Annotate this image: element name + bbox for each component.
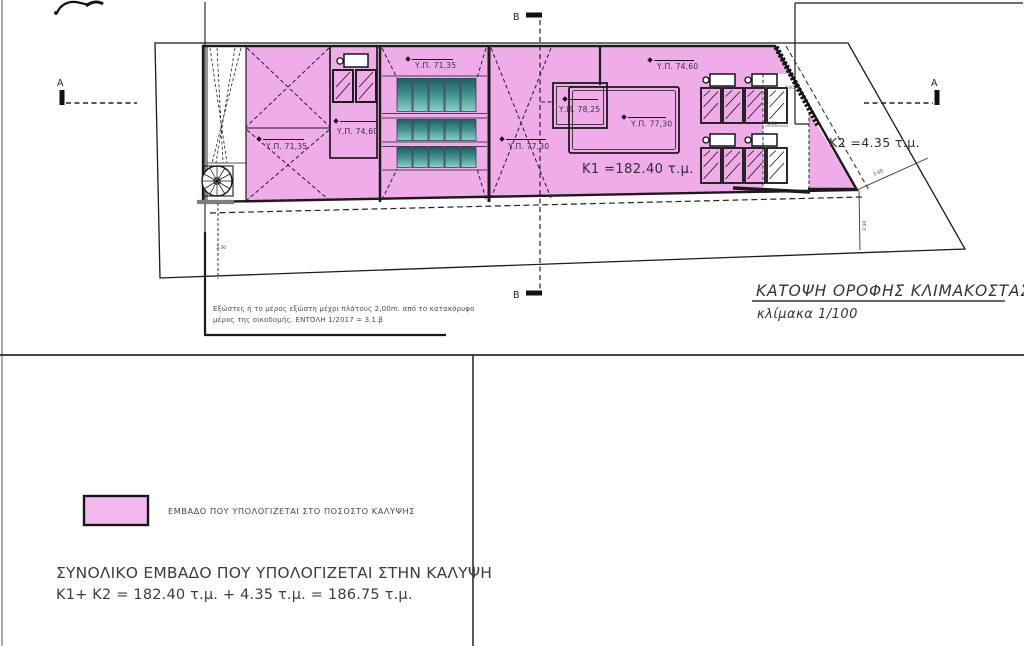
dimension-right-diag: 3.00: [872, 168, 884, 178]
height-label-5-text: Υ.Π. 77,30: [630, 120, 672, 129]
summary-line-2: K1+ K2 = 182.40 τ.μ. + 4.35 τ.μ. = 186.7…: [56, 587, 413, 603]
k2-area-label: K2 =4.35 τ.μ.: [829, 135, 920, 150]
title-block: ΚΑΤΟΨΗ ΟΡΟΦΗΣ ΚΛΙΜΑΚΟΣΤΑΣΙΟΥ κλίμακα 1/1…: [752, 282, 1024, 322]
section-label-b-top: B: [513, 12, 520, 23]
height-label-4-text: Υ.Π. 78,25: [558, 105, 600, 114]
height-label-2-text: Υ.Π. 71,35: [414, 61, 456, 70]
dimension-panel-top: 2.00: [785, 85, 794, 90]
k1-area-label: K1 =182.40 τ.μ.: [582, 162, 694, 177]
signature-mark: [54, 2, 103, 15]
slanted-wall-hatch-band: [776, 47, 818, 125]
note-line-2: μέρος της οικοδομής. ΕΝΤΟΛΗ 1/2017 = 3.1…: [213, 316, 383, 324]
height-label-6-text: Υ.Π. 74,60: [656, 62, 698, 71]
adjacent-structure-lines: [795, 3, 1023, 124]
note-line-1: Εξώστες ή το μέρος εξώστη μέχρι πλάτους …: [213, 305, 475, 313]
dimension-left-offset: 3.30: [216, 245, 226, 251]
section-marker-b-bottom: B: [513, 290, 542, 301]
skylight-grid: [382, 76, 487, 170]
dimension-lines: [857, 158, 928, 250]
legend-swatch: [84, 496, 148, 525]
section-marker-a-left: A: [57, 78, 137, 105]
dimension-right-offset: 3.30: [862, 221, 868, 231]
drawing-scale: κλίμακα 1/100: [757, 307, 858, 322]
drawing-title: ΚΑΤΟΨΗ ΟΡΟΦΗΣ ΚΛΙΜΑΚΟΣΤΑΣΙΟΥ: [756, 282, 1024, 300]
height-label-3-text: Υ.Π. 77,30: [507, 142, 549, 151]
section-label-a-left: A: [57, 78, 64, 89]
floor-plan-sheet: A A B B Υ.Π. 71,35 Υ.Π. 74,60 Υ.Π. 71,35…: [0, 0, 1024, 646]
legend-label: ΕΜΒΑΔΟ ΠΟΥ ΥΠΟΛΟΓΙΖΕΤΑΙ ΣΤΟ ΠΟΣΟΣΤΟ ΚΑΛΥ…: [168, 506, 415, 516]
summary-line-1: ΣΥΝΟΛΙΚΟ ΕΜΒΑΔΟ ΠΟΥ ΥΠΟΛΟΓΙΖΕΤΑΙ ΣΤΗΝ ΚΑ…: [56, 564, 492, 582]
section-label-b-bottom: B: [513, 290, 520, 301]
height-label-0-text: Υ.Π. 71,35: [265, 142, 307, 151]
height-label-1-text: Υ.Π. 74,60: [336, 127, 378, 136]
section-label-a-right: A: [931, 78, 938, 89]
plan-canvas: A A B B Υ.Π. 71,35 Υ.Π. 74,60 Υ.Π. 71,35…: [0, 0, 1024, 646]
spiral-staircase: [202, 166, 233, 196]
coverage-area-k1: [246, 46, 790, 203]
legend: ΕΜΒΑΔΟ ΠΟΥ ΥΠΟΛΟΓΙΖΕΤΑΙ ΣΤΟ ΠΟΣΟΣΤΟ ΚΑΛΥ…: [84, 496, 415, 525]
summary: ΣΥΝΟΛΙΚΟ ΕΜΒΑΔΟ ΠΟΥ ΥΠΟΛΟΓΙΖΕΤΑΙ ΣΤΗΝ ΚΑ…: [56, 564, 492, 603]
dimension-panel-bottom: 2.00: [768, 121, 777, 126]
